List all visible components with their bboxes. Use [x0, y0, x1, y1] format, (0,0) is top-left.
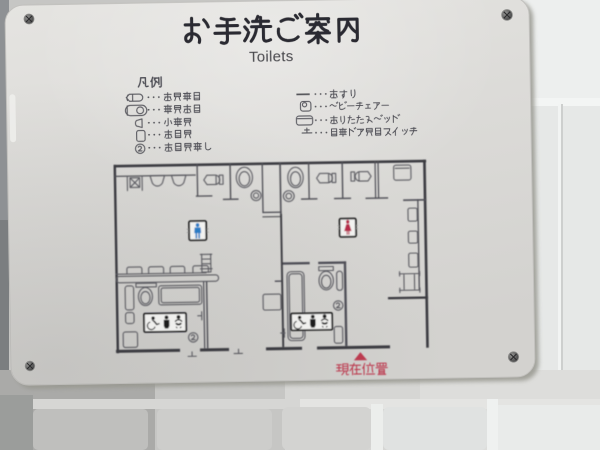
svg-text:Toilets: Toilets [249, 48, 294, 66]
